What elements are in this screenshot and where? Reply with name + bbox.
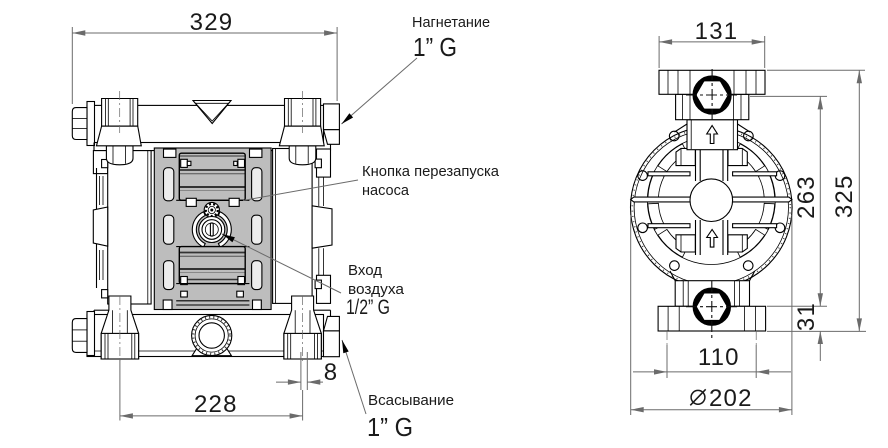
svg-text:8: 8 bbox=[324, 359, 339, 386]
svg-text:263: 263 bbox=[793, 175, 820, 219]
svg-text:31: 31 bbox=[793, 302, 820, 331]
svg-text:202: 202 bbox=[709, 385, 753, 412]
svg-text:насоса: насоса bbox=[362, 182, 410, 199]
svg-text:228: 228 bbox=[194, 391, 238, 418]
svg-text:Кнопка перезапуска: Кнопка перезапуска bbox=[362, 163, 500, 180]
svg-text:110: 110 bbox=[698, 344, 740, 371]
svg-text:329: 329 bbox=[190, 9, 234, 36]
svg-text:1” G: 1” G bbox=[413, 32, 457, 62]
svg-text:Вход: Вход bbox=[348, 262, 382, 279]
svg-text:325: 325 bbox=[831, 174, 858, 218]
svg-text:1” G: 1” G bbox=[367, 412, 413, 442]
svg-text:Всасывание: Всасывание bbox=[368, 392, 454, 409]
svg-text:Нагнетание: Нагнетание bbox=[412, 14, 490, 31]
svg-text:131: 131 bbox=[695, 18, 739, 45]
svg-text:1/2” G: 1/2” G bbox=[346, 296, 390, 319]
